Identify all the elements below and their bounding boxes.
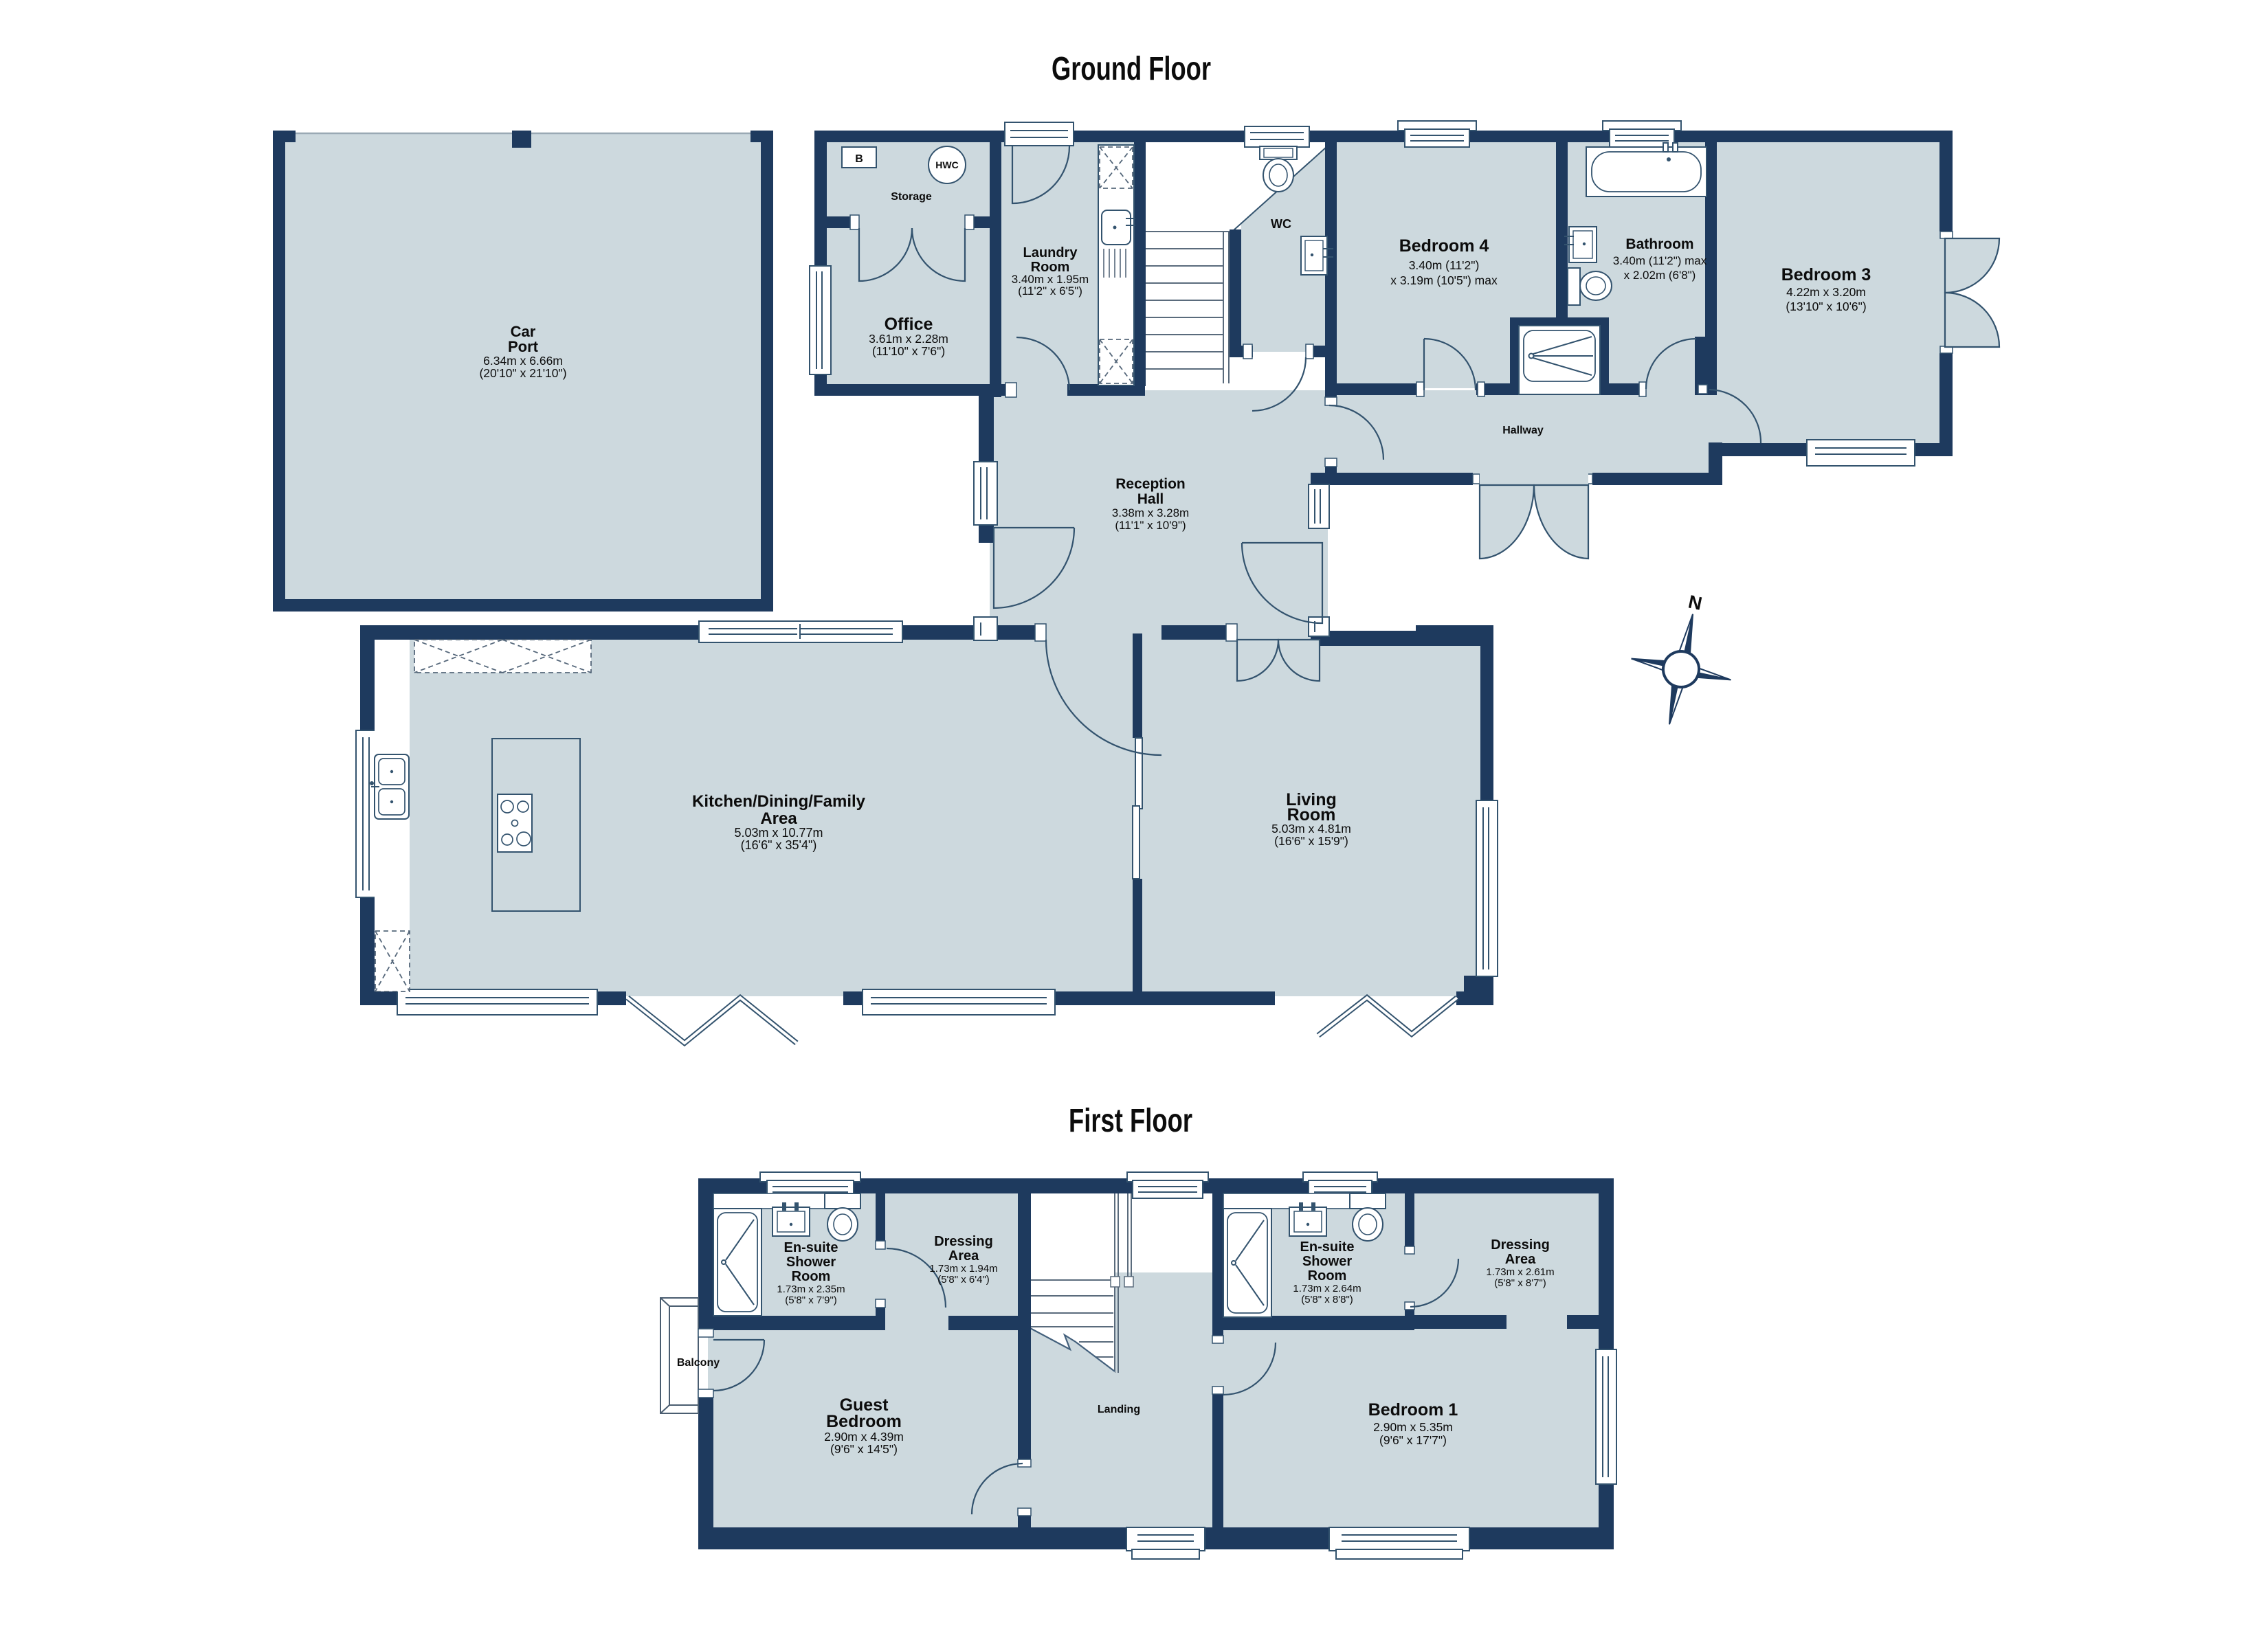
svg-text:3.40m (11'2"): 3.40m (11'2") — [1409, 258, 1480, 272]
svg-text:1.73m x 1.94m: 1.73m x 1.94m — [929, 1263, 997, 1275]
svg-text:(20'10" x 21'10"): (20'10" x 21'10") — [479, 366, 566, 380]
svg-text:B: B — [855, 153, 863, 165]
svg-text:Hallway: Hallway — [1502, 425, 1544, 436]
svg-text:Bedroom: Bedroom — [826, 1412, 902, 1431]
svg-text:(9'6" x 14'5"): (9'6" x 14'5") — [830, 1442, 898, 1456]
svg-text:First Floor: First Floor — [1069, 1103, 1192, 1139]
svg-text:1.73m x 2.35m: 1.73m x 2.35m — [777, 1283, 845, 1295]
svg-text:(16'6" x 15'9"): (16'6" x 15'9") — [1274, 834, 1348, 848]
svg-text:Area: Area — [1505, 1252, 1536, 1267]
svg-text:1.73m x 2.61m: 1.73m x 2.61m — [1486, 1266, 1554, 1278]
svg-text:Bedroom 3: Bedroom 3 — [1781, 265, 1871, 284]
svg-text:(16'6" x 35'4"): (16'6" x 35'4") — [741, 838, 817, 852]
svg-text:Ground Floor: Ground Floor — [1052, 51, 1211, 87]
svg-text:Shower: Shower — [1302, 1254, 1352, 1269]
svg-text:HWC: HWC — [935, 159, 958, 170]
svg-text:Room: Room — [1308, 1268, 1347, 1283]
svg-text:Reception: Reception — [1115, 476, 1186, 492]
svg-text:Balcony: Balcony — [677, 1357, 720, 1369]
svg-text:(11'10" x 7'6"): (11'10" x 7'6") — [872, 344, 945, 358]
svg-text:En-suite: En-suite — [1300, 1239, 1355, 1255]
svg-text:Storage: Storage — [891, 191, 932, 203]
svg-text:x 3.19m (10'5") max: x 3.19m (10'5") max — [1390, 273, 1498, 287]
svg-text:Dressing: Dressing — [934, 1234, 993, 1249]
svg-text:Bedroom 4: Bedroom 4 — [1399, 236, 1489, 256]
svg-text:5.03m x 10.77m: 5.03m x 10.77m — [734, 826, 823, 840]
svg-text:3.61m x 2.28m: 3.61m x 2.28m — [869, 332, 948, 346]
svg-text:Room: Room — [792, 1269, 831, 1284]
svg-text:Area: Area — [948, 1248, 979, 1264]
svg-text:x 2.02m (6'8"): x 2.02m (6'8") — [1624, 269, 1696, 282]
svg-text:(13'10" x 10'6"): (13'10" x 10'6") — [1786, 300, 1866, 313]
svg-text:Hall: Hall — [1137, 491, 1164, 507]
svg-text:(5'8" x 8'7"): (5'8" x 8'7") — [1494, 1277, 1546, 1289]
svg-text:(5'8" x 8'8"): (5'8" x 8'8") — [1301, 1294, 1353, 1305]
svg-text:Dressing: Dressing — [1491, 1237, 1550, 1253]
svg-text:3.40m (11'2") max: 3.40m (11'2") max — [1613, 254, 1707, 267]
svg-text:2.90m x 5.35m: 2.90m x 5.35m — [1373, 1420, 1453, 1434]
svg-text:Bedroom 1: Bedroom 1 — [1368, 1400, 1458, 1420]
svg-text:6.34m x 6.66m: 6.34m x 6.66m — [483, 354, 563, 368]
svg-text:Bathroom: Bathroom — [1625, 236, 1693, 252]
svg-text:Shower: Shower — [786, 1255, 836, 1270]
svg-text:1.73m x 2.64m: 1.73m x 2.64m — [1293, 1283, 1361, 1294]
svg-text:3.38m x 3.28m: 3.38m x 3.28m — [1112, 506, 1189, 519]
svg-text:Kitchen/Dining/Family: Kitchen/Dining/Family — [692, 792, 866, 811]
svg-text:Landing: Landing — [1098, 1404, 1140, 1415]
svg-text:(9'6" x 17'7"): (9'6" x 17'7") — [1379, 1433, 1447, 1447]
svg-text:En-suite: En-suite — [784, 1240, 838, 1255]
svg-text:Area: Area — [760, 809, 797, 828]
svg-text:Office: Office — [885, 315, 933, 334]
svg-text:5.03m x 4.81m: 5.03m x 4.81m — [1271, 822, 1351, 835]
svg-text:4.22m x 3.20m: 4.22m x 3.20m — [1786, 285, 1866, 299]
svg-text:(11'2" x 6'5"): (11'2" x 6'5") — [1018, 284, 1082, 298]
svg-text:Port: Port — [508, 338, 539, 355]
svg-text:(5'8" x 6'4"): (5'8" x 6'4") — [937, 1274, 990, 1286]
svg-text:Laundry: Laundry — [1023, 245, 1078, 260]
svg-text:WC: WC — [1271, 217, 1291, 231]
svg-text:(5'8" x 7'9"): (5'8" x 7'9") — [785, 1294, 837, 1306]
svg-text:(11'1" x 10'9"): (11'1" x 10'9") — [1115, 519, 1186, 532]
svg-text:2.90m x 4.39m: 2.90m x 4.39m — [824, 1430, 904, 1444]
